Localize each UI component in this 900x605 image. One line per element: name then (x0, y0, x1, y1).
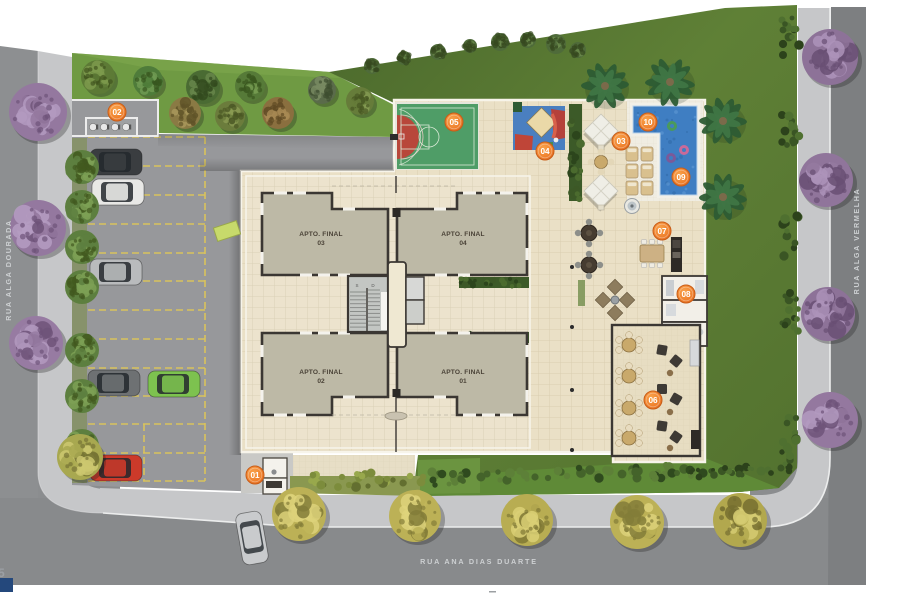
svg-text:01: 01 (250, 471, 260, 480)
svg-text:03: 03 (616, 137, 626, 146)
svg-text:RUA ALGA VERMELHA: RUA ALGA VERMELHA (852, 188, 861, 295)
svg-text:06: 06 (648, 396, 658, 405)
svg-text:APTO. FINAL: APTO. FINAL (441, 231, 484, 238)
svg-text:05: 05 (449, 118, 459, 127)
svg-text:09: 09 (676, 173, 686, 182)
svg-text:04: 04 (540, 147, 550, 156)
svg-text:APTO. FINAL: APTO. FINAL (441, 369, 484, 376)
svg-text:07: 07 (657, 227, 667, 236)
svg-text:APTO. FINAL: APTO. FINAL (299, 231, 342, 238)
svg-text:03: 03 (317, 240, 325, 247)
svg-text:02: 02 (317, 378, 325, 385)
svg-text:02: 02 (112, 108, 122, 117)
svg-text:RUA ANA DIAS DUARTE: RUA ANA DIAS DUARTE (420, 557, 538, 566)
svg-text:APTO. FINAL: APTO. FINAL (299, 369, 342, 376)
svg-text:04: 04 (459, 240, 467, 247)
svg-text:01: 01 (459, 378, 467, 385)
svg-text:RUA ALGA DOURADA: RUA ALGA DOURADA (4, 219, 13, 320)
svg-text:08: 08 (681, 290, 691, 299)
svg-text:10: 10 (643, 118, 653, 127)
svg-text:5: 5 (0, 566, 5, 580)
svg-text:S: S (355, 283, 358, 288)
